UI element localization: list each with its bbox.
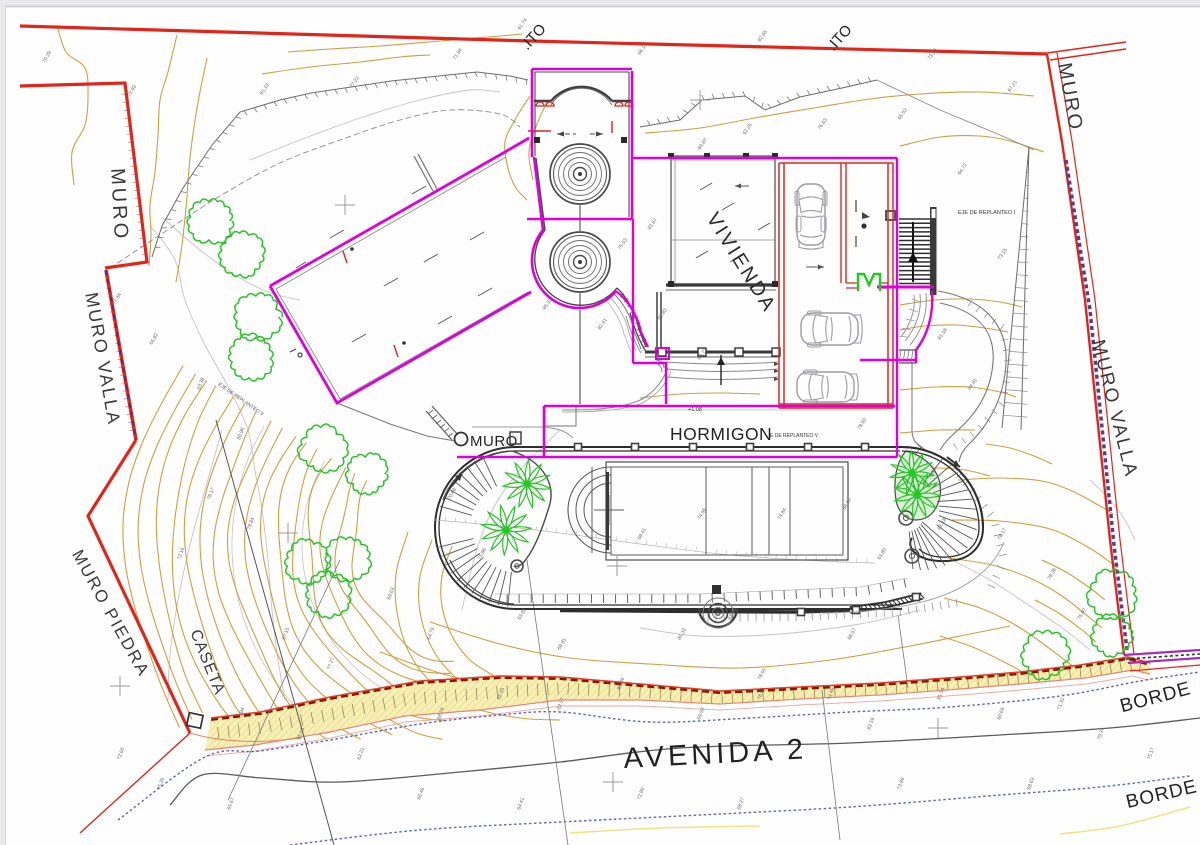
svg-text:+1.08: +1.08 <box>688 407 702 413</box>
svg-text:EJE DE REPLANTEO I: EJE DE REPLANTEO I <box>958 210 1016 216</box>
svg-text:MURO: MURO <box>106 168 132 242</box>
svg-text:HORMIGON: HORMIGON <box>670 424 772 444</box>
svg-text:E DE REPLANTEO V: E DE REPLANTEO V <box>770 433 819 439</box>
